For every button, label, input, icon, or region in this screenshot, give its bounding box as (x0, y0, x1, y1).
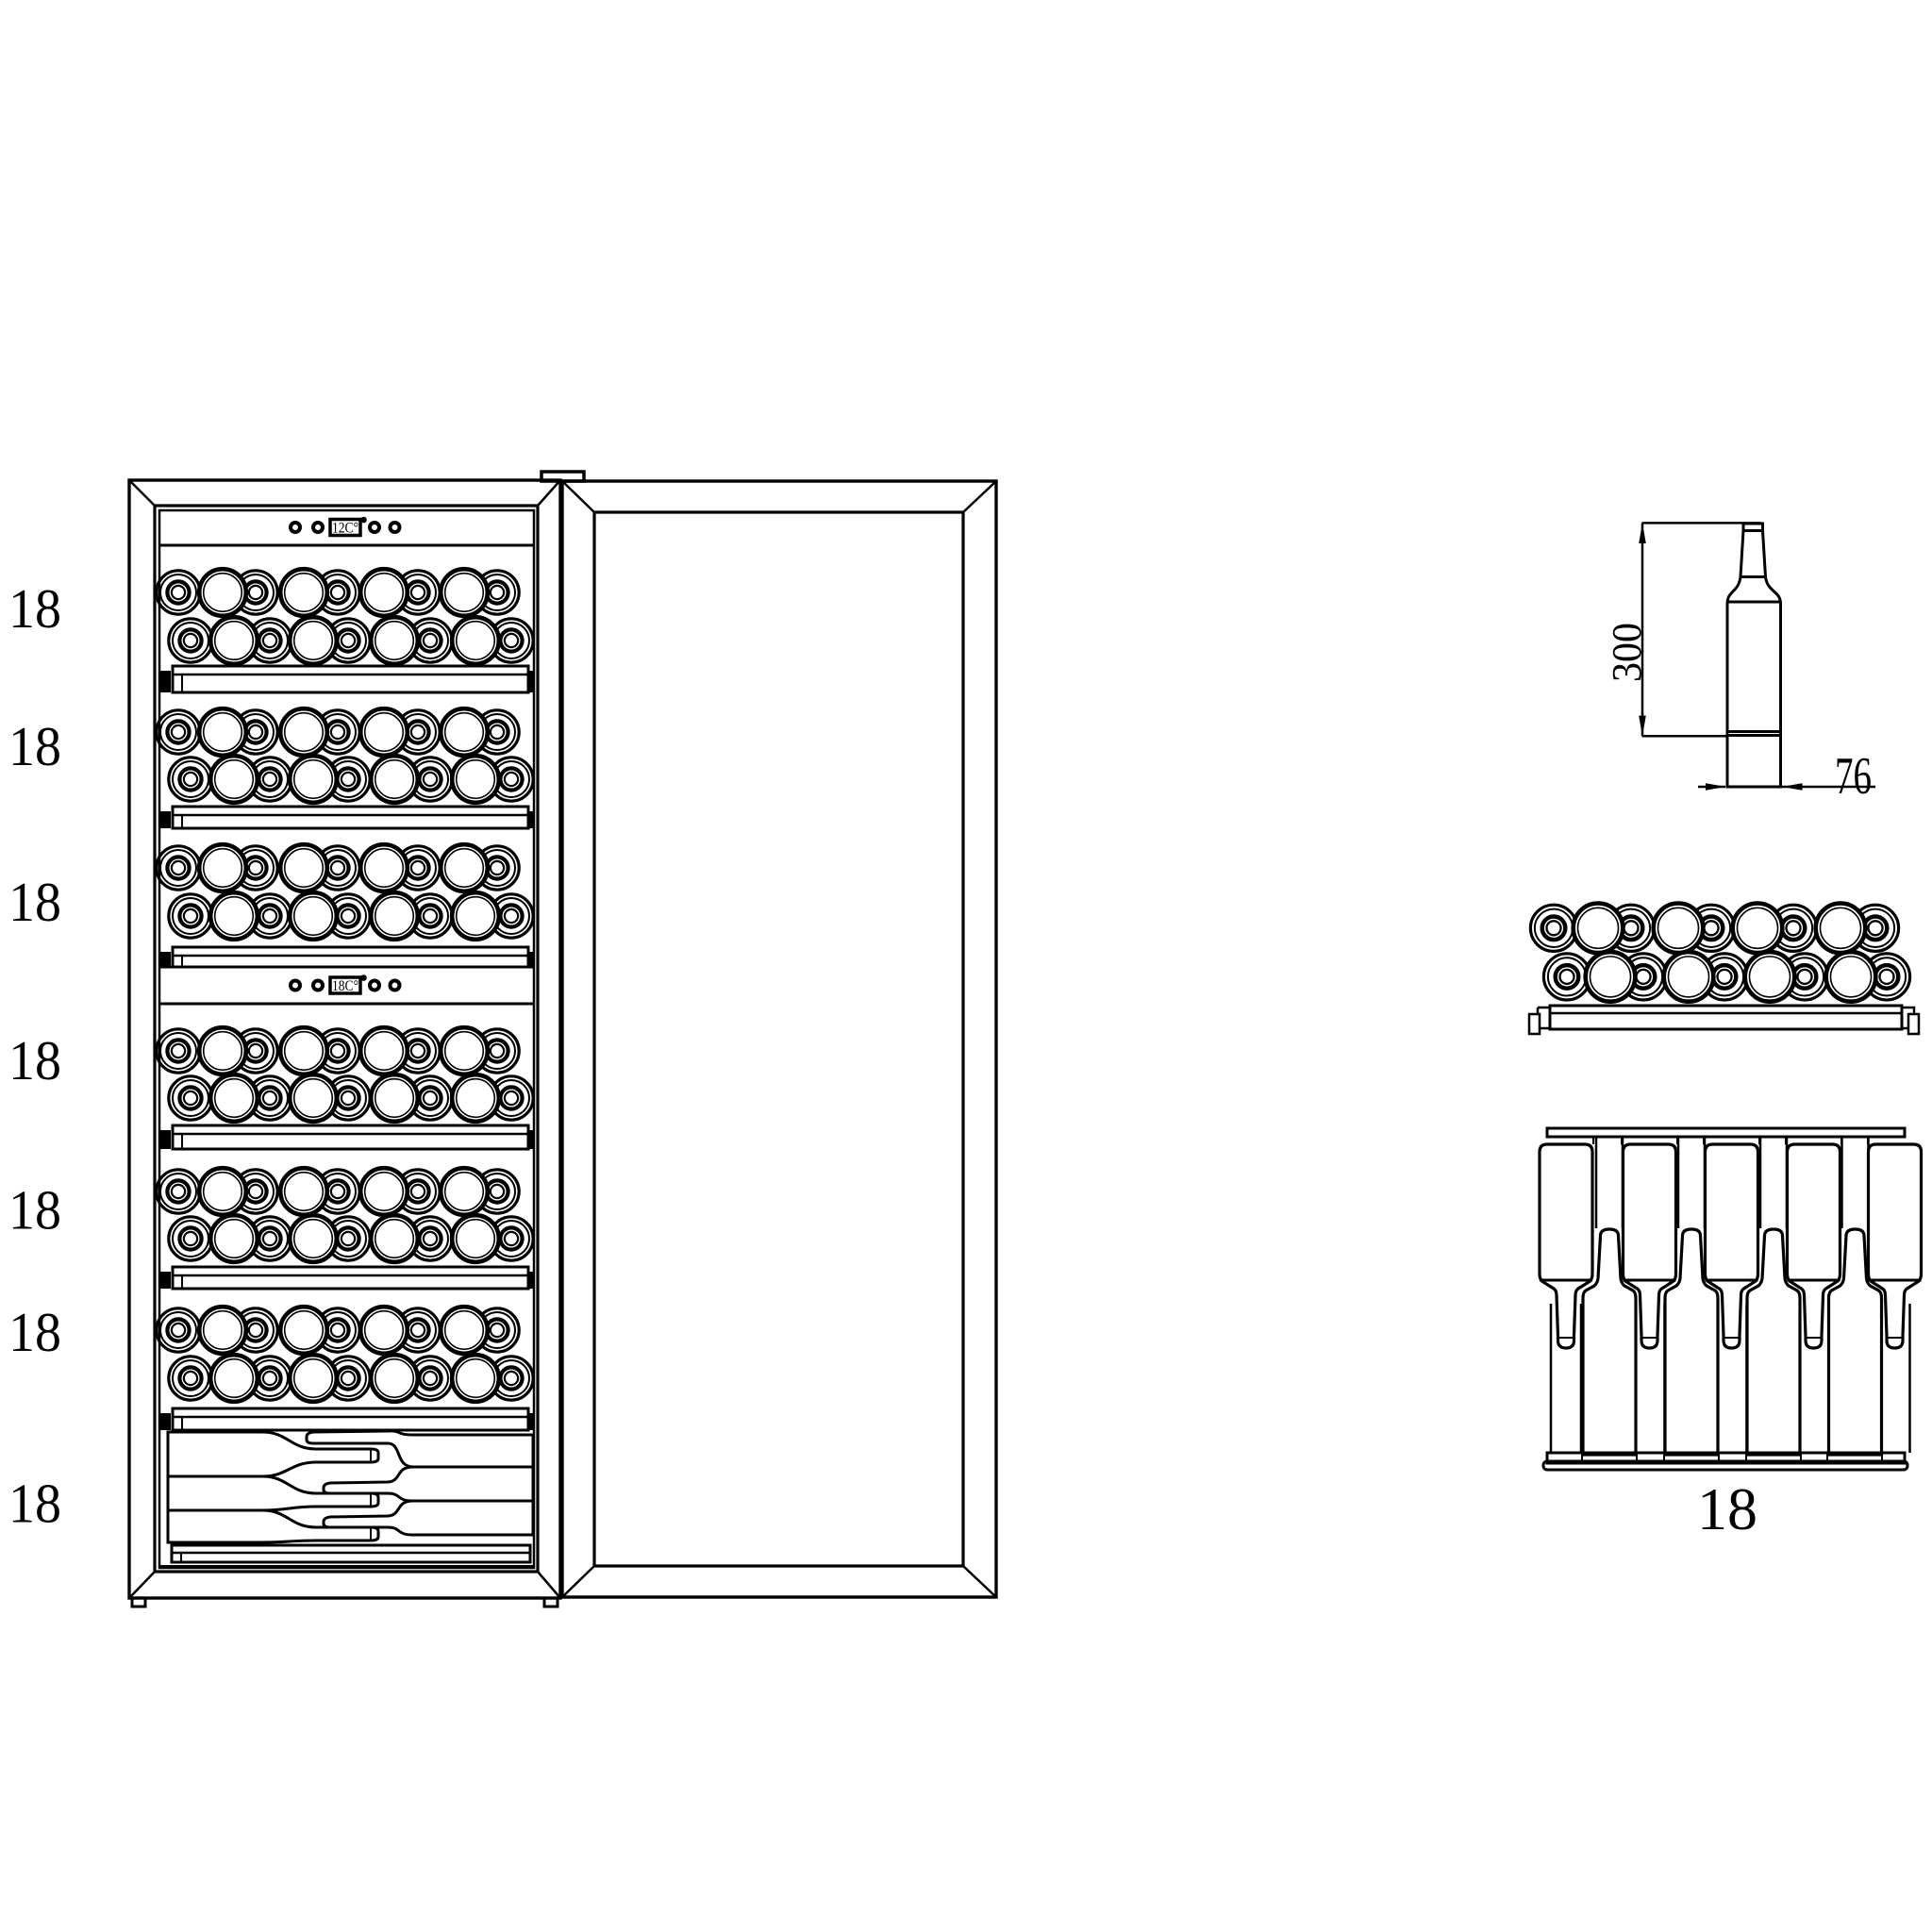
svg-text:18C°: 18C° (332, 978, 358, 994)
svg-text:18: 18 (8, 1029, 61, 1091)
svg-text:76: 76 (1835, 747, 1872, 806)
svg-text:18: 18 (8, 577, 61, 640)
svg-text:18: 18 (8, 1301, 61, 1363)
svg-text:18: 18 (8, 1179, 61, 1241)
svg-text:18: 18 (8, 871, 61, 933)
svg-text:18: 18 (8, 1472, 61, 1534)
svg-text:18: 18 (8, 715, 61, 777)
svg-text:12C°: 12C° (332, 521, 358, 537)
svg-text:18: 18 (1697, 1476, 1757, 1542)
svg-text:300: 300 (1603, 623, 1650, 682)
